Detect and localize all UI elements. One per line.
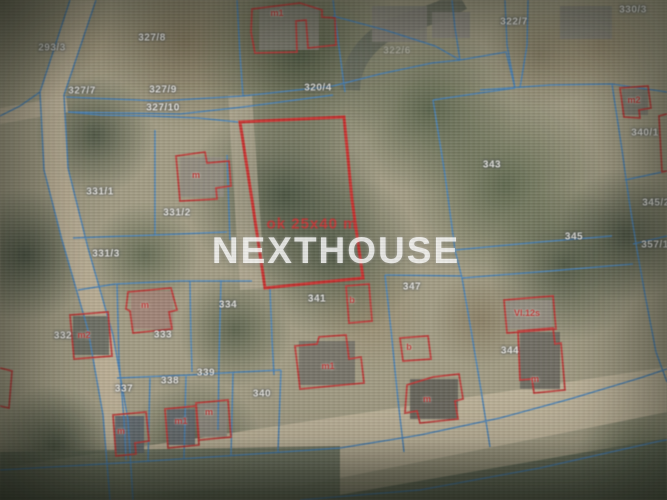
building-outline-partial xyxy=(659,114,667,172)
parcel-number-label: 333 xyxy=(154,330,172,341)
parcel-number-label: 344 xyxy=(501,346,519,357)
parcel-number-label: 327/9 xyxy=(149,85,177,96)
building-outline xyxy=(405,374,463,423)
aerial-map: 293/3327/8327/7327/9327/10320/4322/6322/… xyxy=(0,0,667,500)
building-outline xyxy=(518,328,565,393)
building-outline xyxy=(196,400,231,440)
building-type-label: m1 xyxy=(321,361,334,371)
building-outline xyxy=(400,336,431,361)
building-type-label: b xyxy=(406,342,412,352)
parcel-number-label: 357/1 xyxy=(641,240,667,251)
parcel-number-label: 343 xyxy=(483,160,501,171)
parcel-number-label: 327/10 xyxy=(146,103,180,114)
parcel-number-label: 340/1 xyxy=(631,128,659,139)
building-type-label: m xyxy=(141,300,149,310)
parcel-number-label: 337 xyxy=(115,384,133,395)
building-type-label: m xyxy=(192,170,200,180)
building-type-label: m xyxy=(531,374,539,384)
building-outline-partial xyxy=(0,368,12,408)
parcel-number-label: 331/3 xyxy=(92,249,120,260)
parcel-number-label: 339 xyxy=(197,368,215,379)
building-type-label: m xyxy=(423,394,431,404)
parcel-number-label: 293/3 xyxy=(38,43,66,54)
parcel-number-label: 341 xyxy=(308,294,326,305)
parcel-number-label: 327/8 xyxy=(138,33,166,44)
building-outline xyxy=(165,406,199,448)
building-outline xyxy=(70,312,112,359)
parcel-number-label: 322/7 xyxy=(500,17,528,28)
parcel-number-label: 331/1 xyxy=(86,187,114,198)
parcel-number-label: 334 xyxy=(219,300,237,311)
parcel-number-label: 338 xyxy=(161,376,179,387)
building-type-label: m2 xyxy=(77,330,90,340)
parcel-number-label: 331/2 xyxy=(163,208,191,219)
parcel-number-label: 327/7 xyxy=(68,86,96,97)
parcel-number-label: 347 xyxy=(403,282,421,293)
building-type-label: m xyxy=(117,426,125,436)
building-type-label: m1 xyxy=(270,8,283,18)
building-outline xyxy=(176,152,231,201)
parcel-number-label: 340 xyxy=(253,389,271,400)
parcel-number-label: 320/4 xyxy=(304,83,332,94)
building-type-label: m2 xyxy=(627,95,640,105)
building-type-label: m1 xyxy=(174,416,187,426)
building-outline xyxy=(251,3,336,53)
parcel-number-label: 332 xyxy=(54,331,72,342)
building-outline xyxy=(126,288,177,333)
building-type-label: VI.12s xyxy=(514,308,540,318)
building-type-label: m xyxy=(205,407,213,417)
parcel-number-label: 345 xyxy=(565,232,583,243)
parcel-number-label: 330/3 xyxy=(619,5,647,16)
parcel-number-label: 322/6 xyxy=(383,46,411,57)
nexthouse-watermark: NEXTHOUSE xyxy=(212,230,460,272)
parcel-number-label: 345/2 xyxy=(642,198,667,209)
building-type-label: b xyxy=(349,295,355,305)
